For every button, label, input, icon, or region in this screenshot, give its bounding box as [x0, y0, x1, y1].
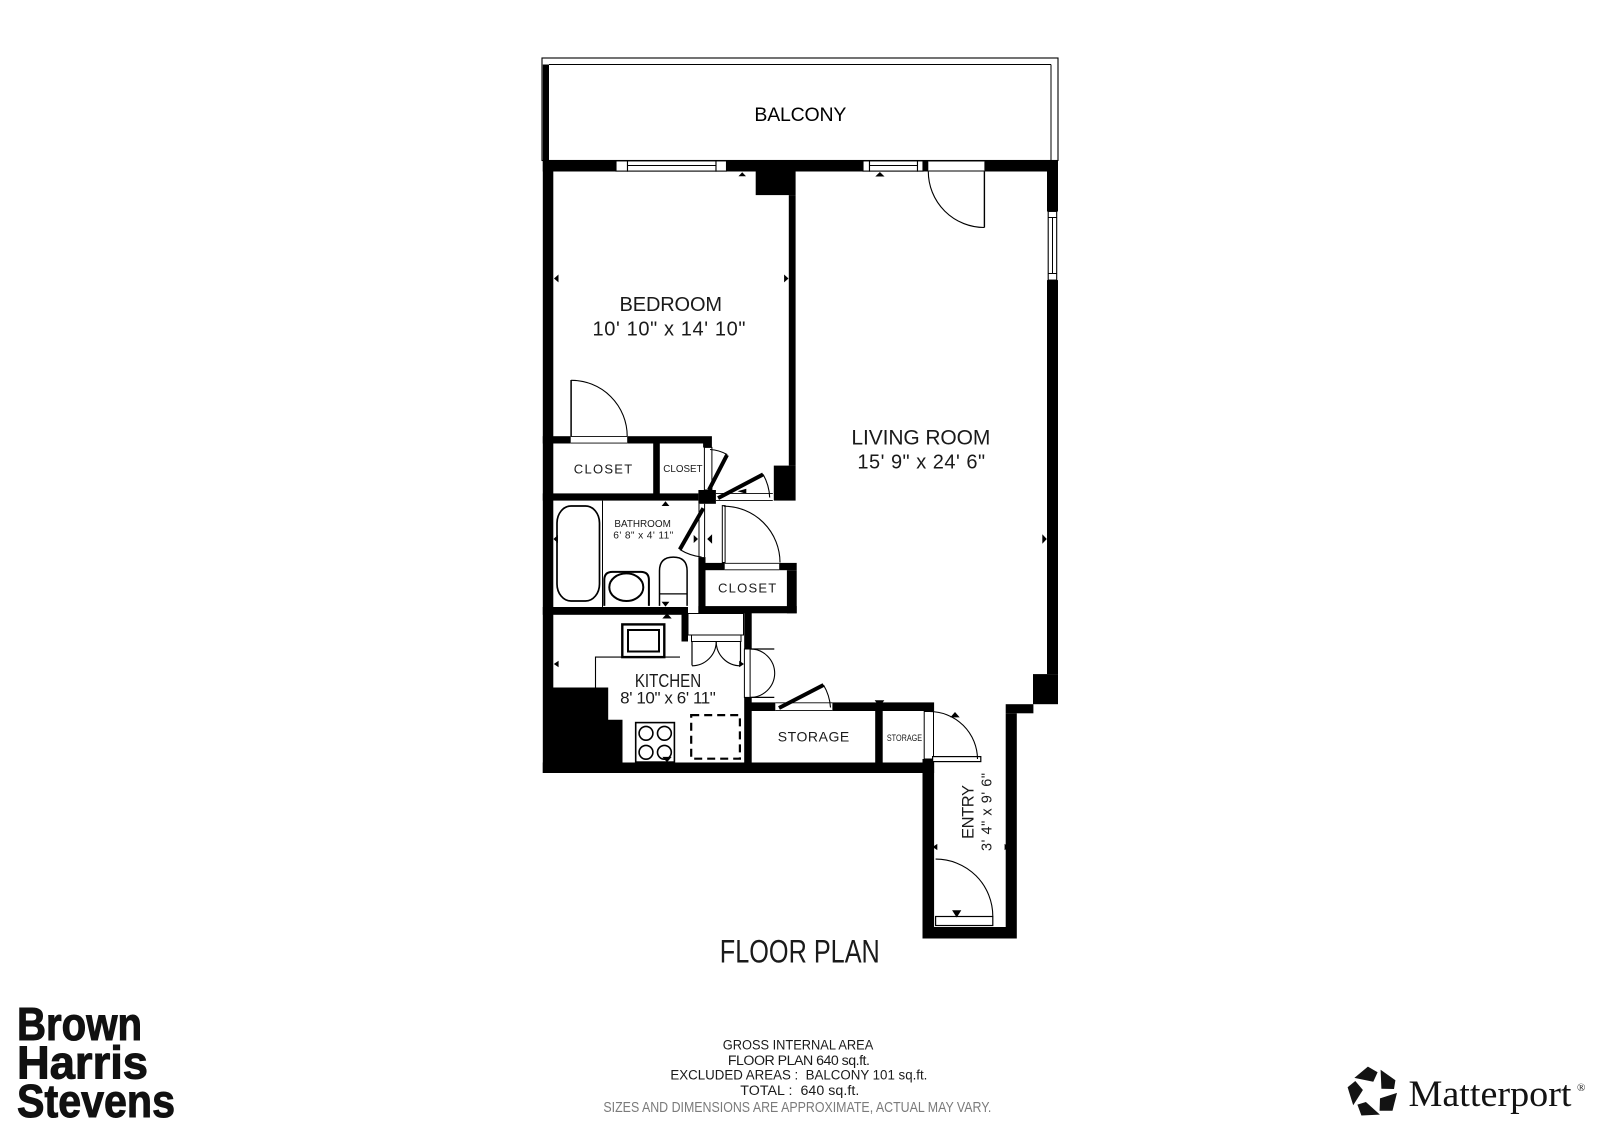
svg-text:STORAGE: STORAGE [778, 729, 849, 745]
svg-text:LIVING ROOM: LIVING ROOM [851, 427, 990, 450]
svg-text:ENTRY: ENTRY [959, 785, 977, 839]
svg-text:CLOSET: CLOSET [574, 462, 632, 477]
svg-text:6' 8" x 4' 11": 6' 8" x 4' 11" [613, 531, 673, 542]
svg-text:FLOOR PLAN: FLOOR PLAN [720, 933, 880, 969]
svg-text:Stevens: Stevens [17, 1075, 175, 1127]
svg-text:CLOSET: CLOSET [718, 581, 776, 596]
svg-text:TOTAL : 640 sq.ft.: TOTAL : 640 sq.ft. [740, 1083, 859, 1099]
svg-text:BALCONY: BALCONY [754, 104, 846, 126]
svg-text:Matterport: Matterport [1409, 1074, 1573, 1115]
svg-text:BATHROOM: BATHROOM [614, 519, 671, 530]
svg-text:®: ® [1577, 1082, 1585, 1094]
svg-text:GROSS INTERNAL AREA: GROSS INTERNAL AREA [723, 1038, 874, 1054]
svg-text:10' 10" x 14' 10": 10' 10" x 14' 10" [593, 318, 746, 340]
svg-text:8' 10" x 6' 11": 8' 10" x 6' 11" [620, 689, 716, 708]
svg-text:15' 9" x 24' 6": 15' 9" x 24' 6" [857, 452, 985, 474]
svg-text:BEDROOM: BEDROOM [620, 294, 723, 316]
svg-text:FLOOR PLAN 640 sq.ft.: FLOOR PLAN 640 sq.ft. [728, 1053, 870, 1069]
svg-text:EXCLUDED AREAS : BALCONY 101: EXCLUDED AREAS : BALCONY 101 sq.ft. [670, 1068, 927, 1084]
svg-text:CLOSET: CLOSET [663, 464, 702, 475]
svg-text:3' 4" x 9' 6": 3' 4" x 9' 6" [980, 773, 996, 851]
svg-text:STORAGE: STORAGE [887, 733, 922, 743]
svg-text:SIZES AND DIMENSIONS ARE APPRO: SIZES AND DIMENSIONS ARE APPROXIMATE, AC… [603, 1100, 991, 1116]
